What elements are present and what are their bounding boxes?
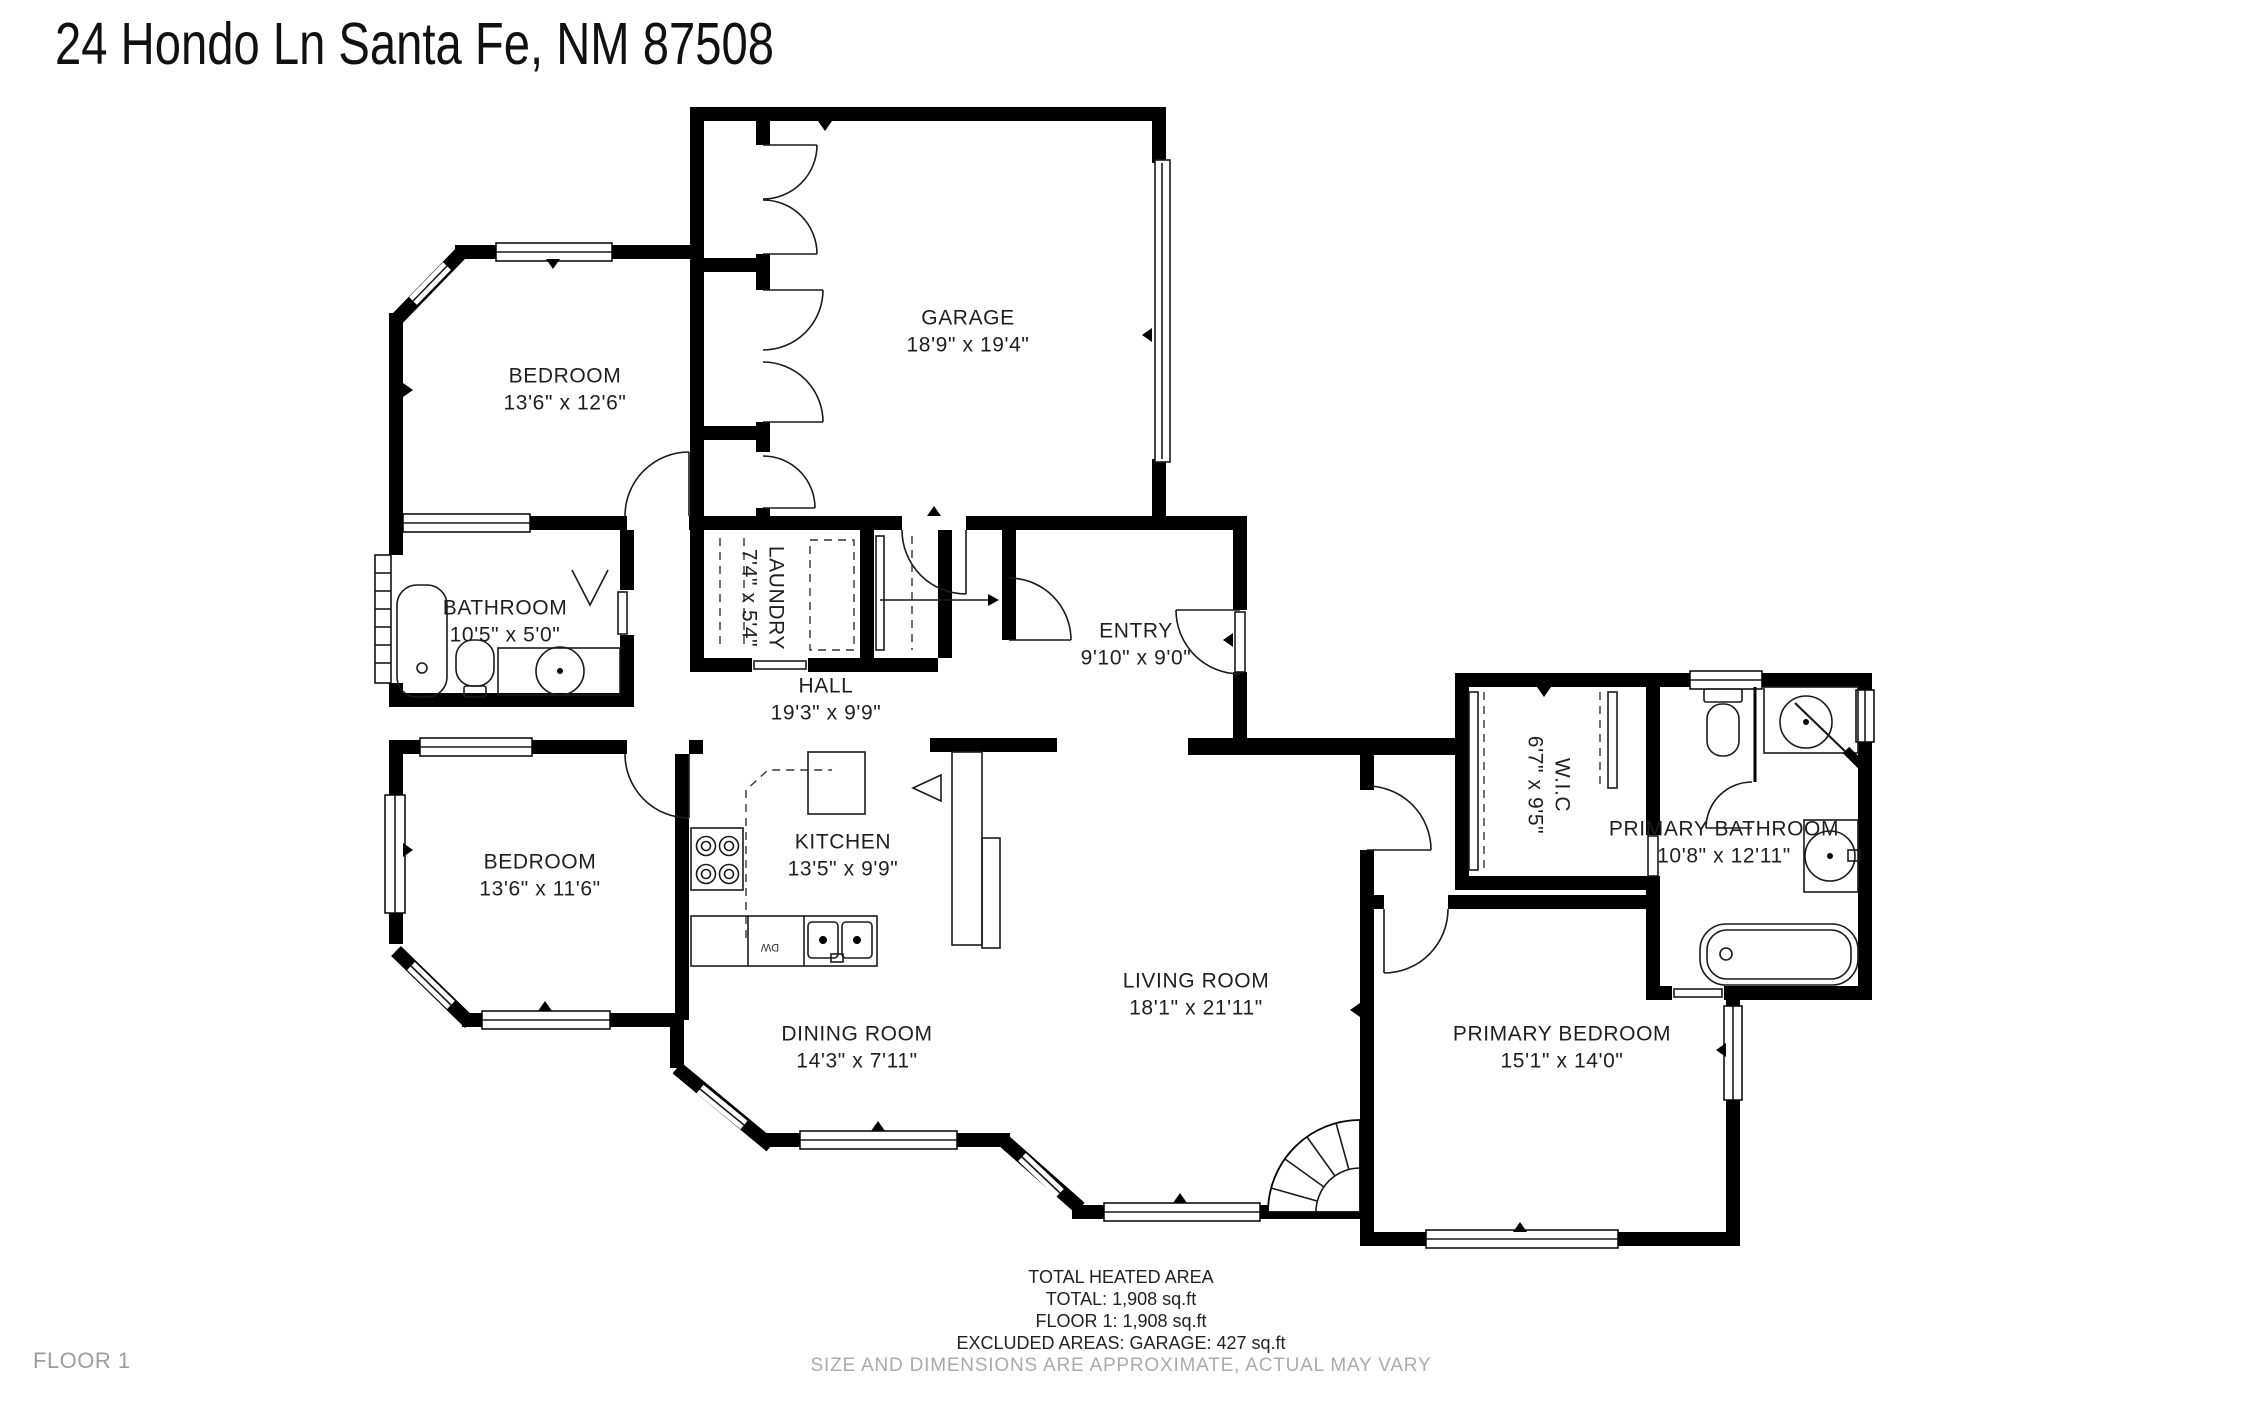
room-label-garage: GARAGE 18'9" x 19'4": [907, 305, 1030, 360]
room-label-primary-bedroom: PRIMARY BEDROOM 15'1" x 14'0": [1453, 1021, 1671, 1076]
size-disclaimer: SIZE AND DIMENSIONS ARE APPROXIMATE, ACT…: [811, 1355, 1432, 1377]
area-summary: TOTAL HEATED AREA TOTAL: 1,908 sq.ft FLO…: [811, 1266, 1432, 1377]
room-label-bedroom-top: BEDROOM 13'6" x 12'6": [504, 363, 627, 418]
floor-plan-drawing: DW: [0, 0, 2245, 1402]
total-area-value: TOTAL: 1,908 sq.ft: [811, 1288, 1432, 1310]
floorplan-page: 24 Hondo Ln Santa Fe, NM 87508: [0, 0, 2245, 1402]
room-label-living: LIVING ROOM 18'1" x 21'11": [1123, 968, 1270, 1023]
room-label-bathroom: BATHROOM 10'5" x 5'0": [443, 595, 568, 650]
excluded-areas-value: EXCLUDED AREAS: GARAGE: 427 sq.ft: [811, 1332, 1432, 1354]
dishwasher-label: DW: [760, 941, 779, 953]
room-label-primary-bathroom: PRIMARY BATHROOM 10'8" x 12'11": [1609, 816, 1839, 871]
room-label-entry: ENTRY 9'10" x 9'0": [1081, 618, 1192, 673]
room-label-kitchen: KITCHEN 13'5" x 9'9": [788, 829, 899, 884]
room-label-wic: W.I.C 6'7" x 9'5": [1521, 736, 1576, 834]
garage-door: [1155, 160, 1170, 462]
total-heated-area-heading: TOTAL HEATED AREA: [811, 1266, 1432, 1288]
room-label-laundry: LAUNDRY 7'4" x 5'4": [735, 546, 790, 650]
room-label-hall: HALL 19'3" x 9'9": [771, 673, 882, 728]
kiva-fireplace: [1268, 1120, 1360, 1212]
floor1-area-value: FLOOR 1: 1,908 sq.ft: [811, 1310, 1432, 1332]
room-label-dining: DINING ROOM 14'3" x 7'11": [781, 1021, 932, 1076]
floor-number-tag: FLOOR 1: [33, 1348, 131, 1374]
room-label-bedroom-bottom: BEDROOM 13'6" x 11'6": [479, 849, 600, 904]
